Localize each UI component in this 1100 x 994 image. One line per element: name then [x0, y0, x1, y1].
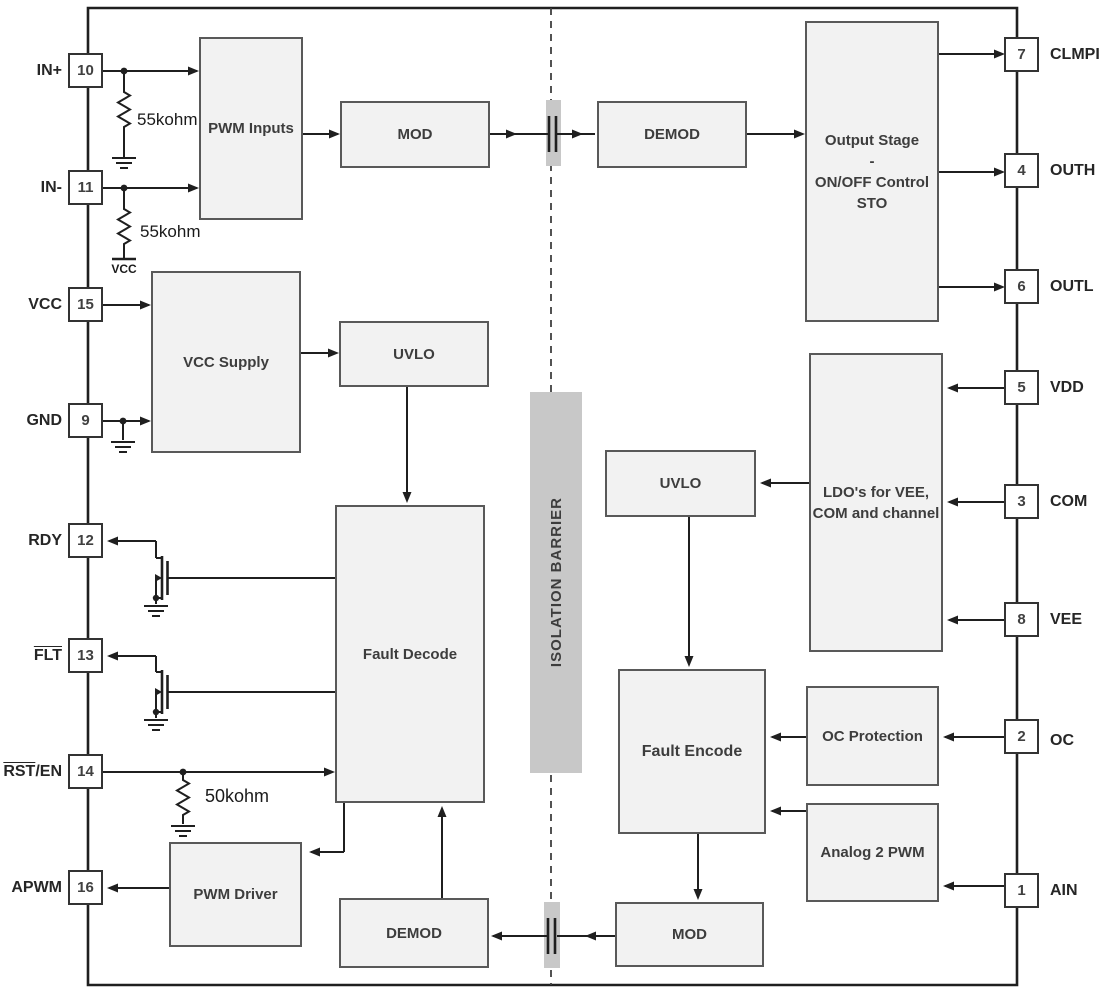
- pin-number-5: 5: [1017, 379, 1025, 396]
- block-pwm-inputs: PWM Inputs: [199, 37, 303, 220]
- pin-label-flt: FLT: [0, 645, 62, 667]
- block-oc-protection-label: OC Protection: [822, 726, 923, 747]
- block-oc-protection: OC Protection: [806, 686, 939, 786]
- block-ldo-line2: COM and channel: [813, 503, 940, 524]
- block-uvlo-right: UVLO: [605, 450, 756, 517]
- block-fault-encode: Fault Encode: [618, 669, 766, 834]
- block-demod-top: DEMOD: [597, 101, 747, 168]
- pin-box-1: 1: [1004, 873, 1039, 908]
- block-uvlo-right-label: UVLO: [660, 473, 702, 494]
- block-vcc-supply: VCC Supply: [151, 271, 301, 453]
- pin-number-16: 16: [77, 879, 94, 896]
- block-mod-bottom-label: MOD: [672, 924, 707, 945]
- pin-number-10: 10: [77, 62, 94, 79]
- pin-label-clmpi: CLMPI: [1050, 44, 1100, 66]
- pin-box-9: 9: [68, 403, 103, 438]
- pin-number-6: 6: [1017, 278, 1025, 295]
- block-demod-top-label: DEMOD: [644, 124, 700, 145]
- pin-number-14: 14: [77, 763, 94, 780]
- pin-box-3: 3: [1004, 484, 1039, 519]
- pin-label-oc: OC: [1050, 730, 1074, 752]
- block-fault-decode: Fault Decode: [335, 505, 485, 803]
- block-mod-top: MOD: [340, 101, 490, 168]
- resistor-label-in-plus: 55kohm: [137, 110, 197, 130]
- block-uvlo-left: UVLO: [339, 321, 489, 387]
- isolation-barrier: ISOLATION BARRIER: [530, 392, 582, 773]
- pin-box-13: 13: [68, 638, 103, 673]
- pin-box-4: 4: [1004, 153, 1039, 188]
- pin-box-7: 7: [1004, 37, 1039, 72]
- pin-label-in-plus: IN+: [0, 60, 62, 82]
- block-pwm-driver: PWM Driver: [169, 842, 302, 947]
- pin-box-15: 15: [68, 287, 103, 322]
- pin-box-11: 11: [68, 170, 103, 205]
- pin-number-12: 12: [77, 532, 94, 549]
- resistor-label-rst-en: 50kohm: [205, 786, 269, 806]
- pin-label-rdy: RDY: [0, 530, 62, 552]
- pin-box-12: 12: [68, 523, 103, 558]
- pin-box-8: 8: [1004, 602, 1039, 637]
- block-ldo: LDO's for VEE, COM and channel: [809, 353, 943, 652]
- block-output-stage-line3: ON/OFF Control: [815, 172, 929, 193]
- pin-label-gnd: GND: [0, 410, 62, 432]
- block-output-stage-line4: STO: [857, 193, 888, 214]
- pin-label-vee: VEE: [1050, 609, 1082, 631]
- block-pwm-driver-label: PWM Driver: [193, 884, 277, 905]
- pin-label-apwm: APWM: [0, 877, 62, 899]
- pin-number-4: 4: [1017, 162, 1025, 179]
- pin-number-3: 3: [1017, 493, 1025, 510]
- pin-label-in-minus: IN-: [0, 177, 62, 199]
- pin-number-13: 13: [77, 647, 94, 664]
- mosfet-symbols: [162, 556, 168, 714]
- pin-box-16: 16: [68, 870, 103, 905]
- block-uvlo-left-label: UVLO: [393, 344, 435, 365]
- block-fault-decode-label: Fault Decode: [363, 644, 457, 665]
- block-fault-encode-label: Fault Encode: [642, 741, 742, 762]
- pin-number-1: 1: [1017, 882, 1025, 899]
- block-mod-top-label: MOD: [398, 124, 433, 145]
- block-output-stage: Output Stage - ON/OFF Control STO: [805, 21, 939, 322]
- pin-number-15: 15: [77, 296, 94, 313]
- pin-box-10: 10: [68, 53, 103, 88]
- pin-label-ain: AIN: [1050, 880, 1078, 902]
- pin-label-com: COM: [1050, 491, 1087, 513]
- pin-label-rst-en: RST/EN: [0, 761, 62, 783]
- block-ldo-line1: LDO's for VEE,: [823, 482, 929, 503]
- pin-number-8: 8: [1017, 611, 1025, 628]
- vcc-rail-label: VCC: [104, 262, 144, 276]
- pin-box-6: 6: [1004, 269, 1039, 304]
- block-analog-2-pwm-label: Analog 2 PWM: [820, 842, 924, 863]
- pin-number-2: 2: [1017, 728, 1025, 745]
- block-mod-bottom: MOD: [615, 902, 764, 967]
- block-output-stage-line1: Output Stage: [825, 130, 919, 151]
- block-vcc-supply-label: VCC Supply: [183, 352, 269, 373]
- pin-label-outl: OUTL: [1050, 276, 1094, 298]
- block-analog-2-pwm: Analog 2 PWM: [806, 803, 939, 902]
- pin-box-2: 2: [1004, 719, 1039, 754]
- pin-label-vcc: VCC: [0, 294, 62, 316]
- block-diagram: ISOLATION BARRIER PWM Inputs MOD DEMOD O…: [0, 0, 1100, 994]
- pin-number-11: 11: [78, 179, 94, 196]
- isolation-barrier-label: ISOLATION BARRIER: [548, 497, 565, 667]
- pin-box-5: 5: [1004, 370, 1039, 405]
- pin-number-9: 9: [81, 412, 89, 429]
- resistor-label-in-minus: 55kohm: [140, 222, 200, 242]
- pin-label-vdd: VDD: [1050, 377, 1084, 399]
- pin-label-outh: OUTH: [1050, 160, 1095, 182]
- block-demod-bottom: DEMOD: [339, 898, 489, 968]
- block-pwm-inputs-label: PWM Inputs: [208, 118, 294, 139]
- block-output-stage-line2: -: [870, 151, 875, 172]
- pin-box-14: 14: [68, 754, 103, 789]
- block-demod-bottom-label: DEMOD: [386, 923, 442, 944]
- pin-number-7: 7: [1017, 46, 1025, 63]
